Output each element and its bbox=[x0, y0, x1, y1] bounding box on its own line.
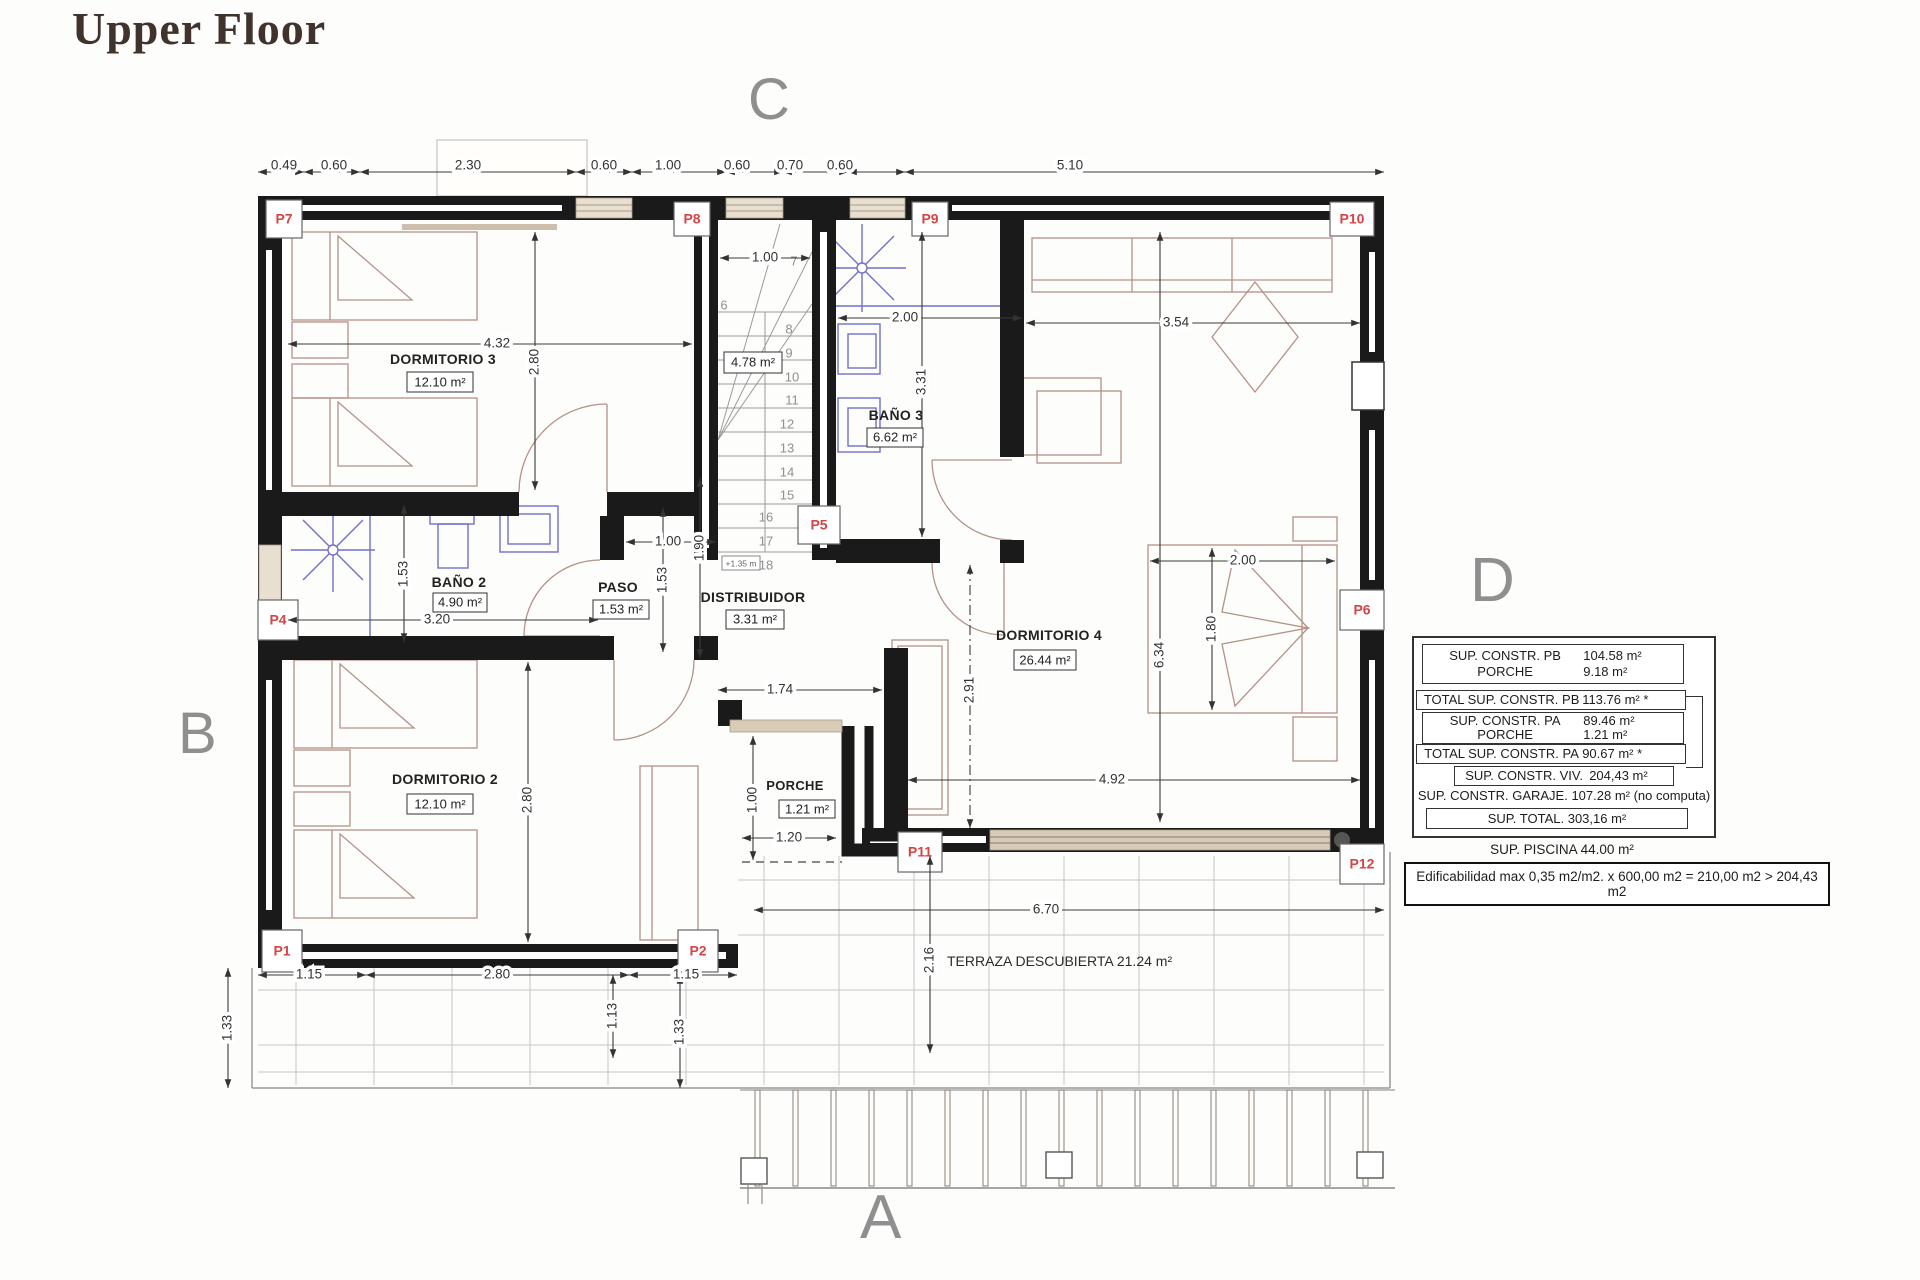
table-value: 9.18 m² bbox=[1583, 664, 1679, 680]
room-area-porche: 1.21 m² bbox=[785, 801, 830, 816]
dim-label: 2.91 bbox=[962, 677, 977, 703]
stair-step-number: 8 bbox=[785, 321, 792, 336]
terrace-label: TERRAZA DESCUBIERTA 21.24 m² bbox=[947, 953, 1172, 969]
room-area-bano3: 6.62 m² bbox=[873, 429, 918, 444]
stair-level-marker: +1.35 m bbox=[722, 556, 760, 570]
dim-label: 1.33 bbox=[220, 1015, 235, 1041]
door-label: P8 bbox=[683, 211, 700, 227]
table-label: SUP. CONSTR. PA bbox=[1427, 714, 1583, 728]
table-row: SUP. CONSTR. PB104.58 m² bbox=[1427, 648, 1679, 664]
room-name-bano3: BAÑO 3 bbox=[869, 406, 924, 423]
table-row: TOTAL SUP. CONSTR. PA90.67 m² * bbox=[1421, 746, 1681, 762]
shower-fan-bano3 bbox=[818, 224, 1022, 312]
dim-label: 1.00 bbox=[655, 534, 681, 549]
table-value: 113.76 m² * bbox=[1582, 692, 1681, 708]
bed-dormitorio2-1 bbox=[294, 660, 477, 748]
stair-step-number: 11 bbox=[785, 392, 799, 407]
table-value: 303,16 m² bbox=[1568, 811, 1627, 826]
table-row: TOTAL SUP. CONSTR. PB113.76 m² * bbox=[1421, 692, 1681, 708]
room-name-dormitorio2: DORMITORIO 2 bbox=[392, 771, 498, 787]
stair-step-number: 12 bbox=[780, 416, 794, 431]
dim-label: 0.60 bbox=[591, 158, 617, 173]
dim-label: 0.49 bbox=[271, 158, 297, 173]
table-row: PORCHE9.18 m² bbox=[1427, 664, 1679, 680]
bed-dormitorio3-1 bbox=[292, 232, 477, 320]
table-value: 107.28 m² (no computa) bbox=[1571, 788, 1710, 803]
nightstands-dormitorio2 bbox=[294, 750, 350, 826]
room-area-dormitorio3: 12.10 m² bbox=[414, 374, 466, 389]
table-value: 104.58 m² bbox=[1583, 648, 1679, 664]
door-label: P4 bbox=[269, 612, 286, 628]
room-area-dormitorio4: 26.44 m² bbox=[1019, 652, 1071, 667]
dim-label: 1.00 bbox=[655, 158, 681, 173]
stair-step-number: 7 bbox=[790, 253, 797, 268]
bed-dormitorio2-2 bbox=[294, 830, 477, 918]
stair-step-number: 6 bbox=[720, 297, 727, 312]
dim-label: 6.70 bbox=[1033, 902, 1059, 917]
shower-fan-bano2 bbox=[291, 505, 375, 642]
room-name-paso: PASO bbox=[598, 579, 638, 595]
dim-label: 2.16 bbox=[922, 947, 937, 973]
door-label: P5 bbox=[810, 517, 827, 533]
room-area-paso: 1.53 m² bbox=[599, 601, 644, 616]
stair-step-number: 16 bbox=[759, 509, 773, 524]
door-label: P12 bbox=[1350, 856, 1375, 872]
door-arc-dormitorio3 bbox=[519, 404, 607, 492]
door-label: P6 bbox=[1353, 602, 1370, 618]
dim-label: 2.00 bbox=[1230, 553, 1256, 568]
door-label-p9: P9 bbox=[912, 202, 948, 236]
surface-table-box-viv: SUP. CONSTR. VIV.204,43 m² bbox=[1454, 766, 1674, 786]
stair-level-label: +1.35 m bbox=[726, 558, 757, 568]
table-row-garaje: SUP. CONSTR. GARAJE. 107.28 m² (no compu… bbox=[1414, 788, 1714, 803]
table-bracket bbox=[1686, 696, 1703, 768]
table-label: PORCHE bbox=[1427, 728, 1583, 742]
stair-area-label: 4.78 m² bbox=[731, 354, 776, 369]
door-label-p11: P11 bbox=[898, 832, 942, 872]
table-label: PORCHE bbox=[1427, 664, 1583, 680]
bed-dormitorio3-2 bbox=[292, 398, 477, 486]
surface-table-box-total: SUP. TOTAL. 303,16 m² bbox=[1426, 808, 1688, 829]
table-value: 89.46 m² bbox=[1583, 714, 1679, 728]
dim-label: 2.80 bbox=[527, 349, 542, 375]
stair-step-number: 18 bbox=[759, 557, 773, 572]
dim-label: 2.80 bbox=[484, 967, 510, 982]
stair-step-number: 9 bbox=[785, 345, 792, 360]
door-label: P1 bbox=[273, 943, 290, 959]
surface-table-box-pa: SUP. CONSTR. PA89.46 m² PORCHE1.21 m² bbox=[1422, 712, 1684, 744]
floor-plan-page: Upper Floor C B D A bbox=[0, 0, 1920, 1280]
table-label: SUP. CONSTR. PB bbox=[1427, 648, 1583, 664]
room-name-porche: PORCHE bbox=[766, 778, 823, 793]
dim-label: 5.10 bbox=[1057, 158, 1083, 173]
table-label: SUP. CONSTR. VIV. bbox=[1459, 768, 1589, 784]
door-label-p10: P10 bbox=[1330, 202, 1374, 236]
dim-label: 0.70 bbox=[777, 158, 803, 173]
dim-label: 2.00 bbox=[892, 310, 918, 325]
dim-label: 1.13 bbox=[605, 1003, 620, 1029]
table-label: SUP. CONSTR. GARAJE. bbox=[1418, 788, 1568, 803]
surface-table: SUP. CONSTR. PB104.58 m² PORCHE9.18 m² T… bbox=[1412, 636, 1716, 838]
room-name-dormitorio3: DORMITORIO 3 bbox=[390, 351, 496, 367]
dim-label: 1.15 bbox=[296, 967, 322, 982]
dim-label: 0.60 bbox=[321, 158, 347, 173]
dim-label: 1.90 bbox=[692, 535, 707, 561]
stair-step-number: 17 bbox=[759, 533, 773, 548]
piscina-label: SUP. PISCINA 44.00 m² bbox=[1412, 842, 1712, 857]
door-arc-bano3 bbox=[932, 563, 1004, 635]
surface-table-box-total-pa: TOTAL SUP. CONSTR. PA90.67 m² * bbox=[1416, 744, 1686, 764]
dim-label: 1.53 bbox=[396, 561, 411, 587]
dim-label: 3.31 bbox=[914, 369, 929, 395]
edificabilidad-note: Edificabilidad max 0,35 m2/m2. x 600,00 … bbox=[1404, 862, 1830, 906]
door-label-p12: P12 bbox=[1340, 844, 1384, 884]
door-label-p5: P5 bbox=[798, 506, 840, 544]
door-arc-dormitorio4 bbox=[932, 460, 1012, 540]
room-area-bano2: 4.90 m² bbox=[438, 594, 483, 609]
sink-bano3 bbox=[838, 324, 880, 374]
table-row: SUP. CONSTR. PA89.46 m² bbox=[1427, 714, 1679, 728]
door-label-p8: P8 bbox=[674, 202, 710, 236]
dim-label: 1.15 bbox=[673, 967, 699, 982]
room-name-dormitorio4: DORMITORIO 4 bbox=[996, 627, 1102, 643]
dim-label: 3.54 bbox=[1163, 315, 1190, 330]
room-area-dormitorio2: 12.10 m² bbox=[414, 796, 466, 811]
dim-label: 6.34 bbox=[1152, 641, 1167, 668]
surface-table-box-total-pb: TOTAL SUP. CONSTR. PB113.76 m² * bbox=[1416, 690, 1686, 710]
room-area-distribuidor: 3.31 m² bbox=[733, 611, 778, 626]
table-label: TOTAL SUP. CONSTR. PA bbox=[1421, 746, 1582, 762]
dim-label: 1.80 bbox=[1204, 616, 1219, 642]
table-value: 204,43 m² bbox=[1589, 768, 1669, 784]
surface-table-box-pb: SUP. CONSTR. PB104.58 m² PORCHE9.18 m² bbox=[1422, 644, 1684, 684]
stair-step-number: 14 bbox=[780, 464, 794, 479]
door-label: P2 bbox=[689, 943, 706, 959]
dim-label: 1.00 bbox=[752, 250, 778, 265]
walls bbox=[258, 196, 1384, 968]
dim-label: 1.53 bbox=[655, 567, 670, 593]
armchair-dormitorio4 bbox=[1015, 378, 1121, 463]
stair-step-number: 15 bbox=[780, 487, 794, 502]
dim-label: 0.60 bbox=[724, 158, 750, 173]
wardrobe-dormitorio2 bbox=[640, 766, 698, 940]
stair-step-number: 13 bbox=[780, 440, 794, 455]
door-label: P9 bbox=[921, 211, 938, 227]
door-label: P11 bbox=[908, 844, 932, 860]
room-name-distribuidor: DISTRIBUIDOR bbox=[701, 589, 806, 605]
wardrobe-dormitorio4 bbox=[1032, 238, 1332, 292]
table-label: SUP. TOTAL. bbox=[1488, 811, 1564, 826]
stair-step-number: 10 bbox=[785, 369, 799, 384]
door-arc-bano2 bbox=[524, 560, 600, 636]
nightstands-dormitorio3 bbox=[292, 322, 348, 398]
door-label-p6: P6 bbox=[1340, 590, 1384, 630]
dim-label: 2.80 bbox=[520, 787, 535, 813]
pergola bbox=[740, 1090, 1395, 1204]
table-value: 90.67 m² * bbox=[1582, 746, 1681, 762]
dim-label: 1.33 bbox=[672, 1019, 687, 1045]
door-label: P10 bbox=[1340, 211, 1365, 227]
dim-label: 0.60 bbox=[827, 158, 853, 173]
terrace-grid bbox=[252, 852, 1390, 1088]
table-row: SUP. CONSTR. VIV.204,43 m² bbox=[1459, 768, 1669, 784]
dim-label: 4.92 bbox=[1099, 772, 1125, 787]
table-value: 1.21 m² bbox=[1583, 728, 1679, 742]
chair-diamond-dormitorio4 bbox=[1212, 282, 1298, 392]
staircase bbox=[718, 224, 812, 552]
dim-label: 1.00 bbox=[745, 787, 760, 813]
door-label: P7 bbox=[275, 211, 292, 227]
door-arc-dormitorio2 bbox=[614, 660, 694, 740]
dim-label: 2.30 bbox=[455, 158, 481, 173]
dim-label: 1.20 bbox=[776, 830, 802, 845]
dim-label: 4.32 bbox=[484, 336, 510, 351]
table-label: TOTAL SUP. CONSTR. PB bbox=[1421, 692, 1582, 708]
table-row: PORCHE1.21 m² bbox=[1427, 728, 1679, 742]
dim-label: 1.74 bbox=[767, 682, 794, 697]
dim-label: 3.20 bbox=[424, 612, 450, 627]
room-name-bano2: BAÑO 2 bbox=[432, 573, 487, 590]
door-label-p7: P7 bbox=[266, 200, 302, 238]
